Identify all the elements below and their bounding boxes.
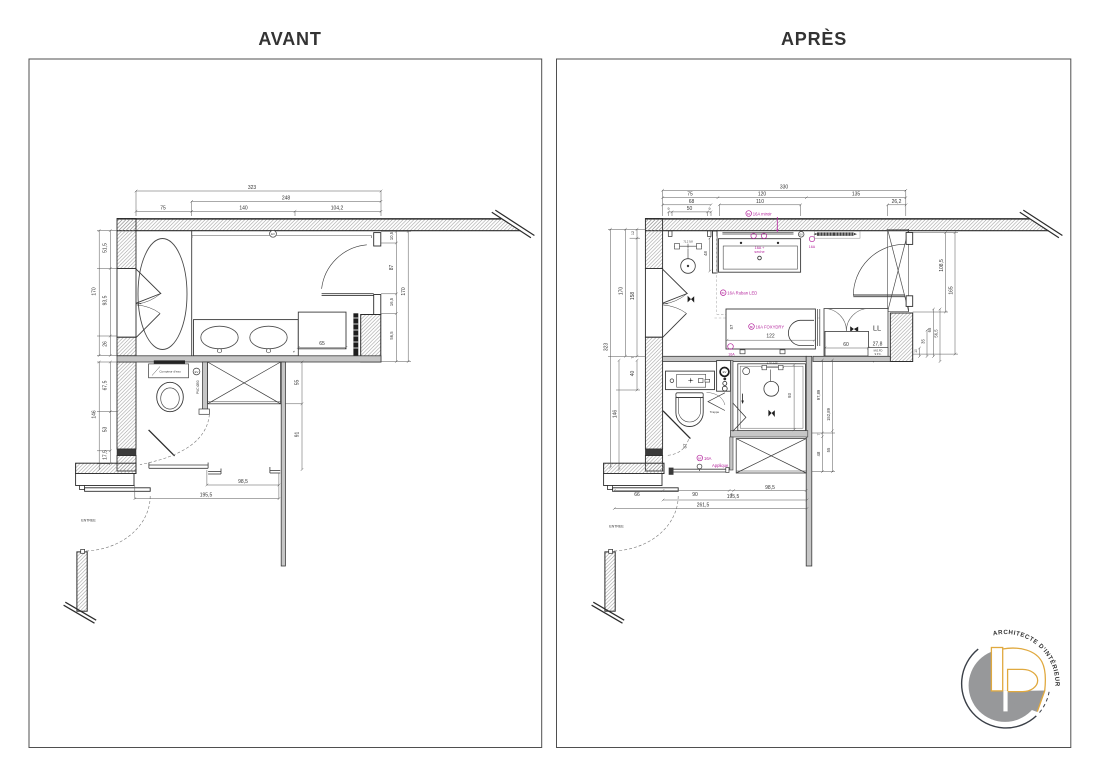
svg-text:48: 48 [703,251,708,256]
svg-text:16A miroir: 16A miroir [753,212,772,217]
svg-text:65: 65 [319,341,325,347]
svg-text:323: 323 [248,185,257,191]
svg-text:EV: EV [271,232,275,236]
svg-text:12: 12 [631,231,635,235]
svg-text:51,5: 51,5 [103,243,109,253]
svg-text:9: 9 [709,207,711,211]
svg-text:152,89: 152,89 [826,407,831,420]
svg-text:Compteur d'eau: Compteur d'eau [159,370,181,374]
svg-text:M.E.FD: M.E.FD [874,349,883,353]
svg-text:261,5: 261,5 [697,503,710,509]
svg-text:146: 146 [92,410,98,419]
svg-text:330: 330 [780,184,789,190]
svg-text:26,2: 26,2 [892,199,902,205]
svg-text:16A: 16A [704,456,712,461]
svg-text:10,5: 10,5 [389,231,394,240]
svg-text:56,5: 56,5 [934,329,939,338]
svg-text:7: 7 [631,357,635,359]
svg-text:BF: BF [722,291,726,295]
svg-text:9: 9 [668,207,670,211]
svg-text:122: 122 [766,334,775,340]
svg-text:ENTREE: ENTREE [609,525,624,529]
svg-text:Trappe: Trappe [710,410,720,414]
svg-text:93,5: 93,5 [103,295,109,305]
svg-text:50: 50 [687,206,693,212]
svg-text:98,5: 98,5 [238,479,248,485]
svg-text:71,2 9,8: 71,2 9,8 [683,239,693,243]
svg-text:48: 48 [816,451,821,456]
svg-text:158: 158 [630,292,636,301]
svg-text:55: 55 [826,447,831,452]
svg-text:87: 87 [389,265,395,271]
svg-text:55: 55 [295,380,301,386]
svg-text:110: 110 [756,199,764,205]
svg-text:108,5: 108,5 [939,259,945,272]
svg-text:66: 66 [634,492,640,498]
svg-text:27,8: 27,8 [873,341,883,347]
svg-text:35: 35 [921,339,926,344]
svg-text:PVC Ø50: PVC Ø50 [196,380,200,394]
svg-text:AVANT: AVANT [258,29,321,49]
svg-text:26: 26 [103,341,109,347]
svg-text:248: 248 [282,195,291,201]
svg-text:65: 65 [927,327,932,332]
svg-text:53: 53 [103,427,109,433]
svg-text:APRÈS: APRÈS [781,28,847,49]
svg-text:87: 87 [683,443,688,448]
svg-text:10: 10 [914,349,918,353]
svg-text:EV: EV [195,370,199,374]
svg-text:9 P.C.: 9 P.C. [875,352,882,356]
svg-text:ENTREE: ENTREE [81,519,96,523]
svg-text:170: 170 [401,287,407,296]
svg-text:75: 75 [687,192,693,198]
svg-text:1,70 1,25: 1,70 1,25 [767,361,778,365]
svg-text:67,5: 67,5 [103,380,109,390]
svg-text:146: 146 [613,410,619,419]
svg-text:93: 93 [787,393,792,398]
svg-text:7: 7 [817,433,821,435]
svg-text:91: 91 [295,432,301,438]
svg-text:56,5: 56,5 [389,331,394,340]
svg-text:EV: EV [799,233,803,237]
svg-text:165: 165 [949,286,955,295]
svg-text:seche: seche [754,250,764,254]
svg-text:BF: BF [750,325,754,329]
svg-text:98,5: 98,5 [765,485,775,491]
svg-text:LL: LL [873,324,881,333]
svg-text:16A Ruban LED: 16A Ruban LED [727,291,757,296]
svg-text:60: 60 [843,342,849,348]
svg-text:Applique: Applique [712,463,729,468]
svg-text:BF: BF [698,456,702,460]
svg-text:170: 170 [92,287,98,296]
svg-text:16A: 16A [809,245,816,249]
svg-text:EV: EV [723,370,727,374]
svg-text:75: 75 [160,205,166,211]
svg-text:BF: BF [747,212,751,216]
svg-text:40: 40 [630,371,636,377]
svg-text:140: 140 [239,205,248,211]
svg-text:16,5: 16,5 [389,297,394,306]
svg-text:68: 68 [689,199,695,205]
svg-text:90: 90 [692,492,698,498]
svg-text:57: 57 [729,324,734,329]
svg-text:104,2: 104,2 [331,205,344,211]
svg-text:135: 135 [852,192,861,198]
svg-text:170: 170 [619,287,625,296]
svg-text:97,89: 97,89 [816,389,821,400]
svg-text:323: 323 [604,343,610,352]
svg-text:195,5: 195,5 [200,493,213,499]
svg-text:195,5: 195,5 [727,494,740,500]
svg-text:120: 120 [758,192,767,198]
svg-text:17,5: 17,5 [103,450,109,460]
svg-text:16A FOXYDRY: 16A FOXYDRY [756,324,785,329]
